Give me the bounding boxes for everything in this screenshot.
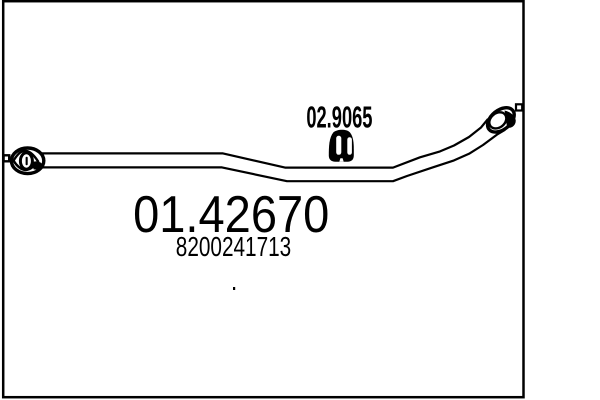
svg-text:8200241713: 8200241713 [176, 232, 291, 262]
svg-text:02.9065: 02.9065 [306, 101, 372, 135]
